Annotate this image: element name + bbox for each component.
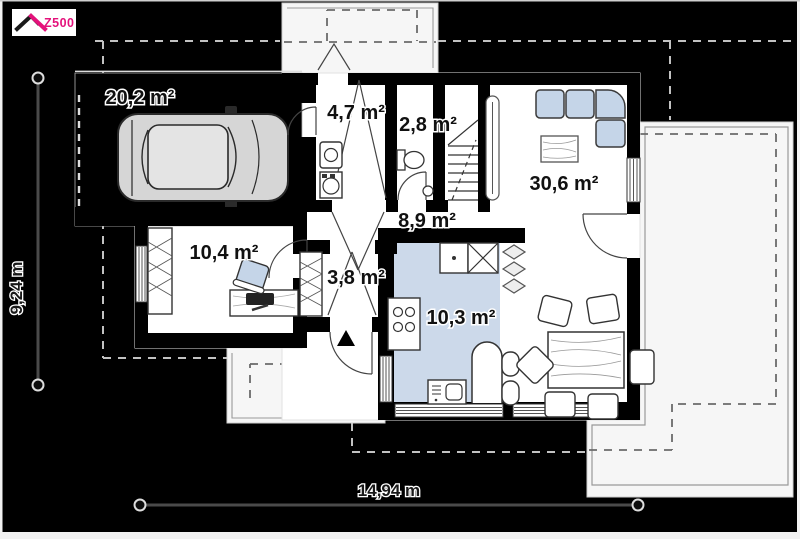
page-border-bottom bbox=[0, 532, 800, 539]
room-label-vestibule: 4,7 m² bbox=[327, 102, 385, 124]
logo-text: Z500 bbox=[44, 16, 75, 30]
stool-icon bbox=[502, 381, 519, 405]
chair-icon bbox=[586, 294, 620, 324]
window-office-west bbox=[136, 246, 147, 302]
z500-logo: Z500 bbox=[12, 9, 76, 36]
dimension-width-label: 14,94 m bbox=[358, 481, 420, 500]
chair-icon bbox=[630, 350, 654, 384]
desk-icon bbox=[230, 290, 298, 316]
room-label-closet: 3,8 m² bbox=[327, 267, 385, 289]
cooktop-icon bbox=[388, 298, 420, 350]
room-label-kitchen: 10,3 m² bbox=[427, 307, 496, 329]
island-counter bbox=[472, 342, 519, 405]
floor-plan: 20,2 m² 4,7 m² 2,8 m² 30,6 m² 8,9 m² 10,… bbox=[0, 0, 800, 539]
floor-plan-page: 20,2 m² 4,7 m² 2,8 m² 30,6 m² 8,9 m² 10,… bbox=[0, 0, 800, 539]
room-label-wc: 2,8 m² bbox=[399, 114, 457, 136]
fridge-icon bbox=[503, 245, 525, 293]
chair-icon bbox=[545, 392, 575, 417]
toilet-icon bbox=[397, 150, 424, 170]
car-mirror bbox=[225, 106, 237, 115]
wardrobe-icon bbox=[148, 228, 172, 314]
window-living-east bbox=[627, 158, 640, 202]
chair-icon bbox=[588, 394, 618, 419]
room-label-office: 10,4 m² bbox=[190, 242, 259, 264]
window-south-1 bbox=[395, 404, 503, 417]
coffee-table-icon bbox=[541, 136, 578, 162]
dimension-height-label: 9,24 m bbox=[7, 262, 26, 315]
drain-icon bbox=[423, 186, 433, 196]
dining-table-icon bbox=[548, 332, 624, 388]
closet-wardrobe-icon bbox=[300, 252, 322, 316]
room-label-hall: 8,9 m² bbox=[398, 210, 456, 232]
kitchen-sink-icon bbox=[428, 380, 466, 404]
window-kitchen-west bbox=[380, 356, 392, 402]
room-label-garage: 20,2 m² bbox=[106, 87, 175, 109]
room-label-living-room: 30,6 m² bbox=[530, 173, 599, 195]
top-porch bbox=[282, 3, 438, 73]
car-icon bbox=[118, 106, 288, 209]
page-border-top bbox=[0, 0, 800, 2]
radiator-icon bbox=[486, 96, 499, 200]
page-border-left bbox=[0, 0, 3, 539]
